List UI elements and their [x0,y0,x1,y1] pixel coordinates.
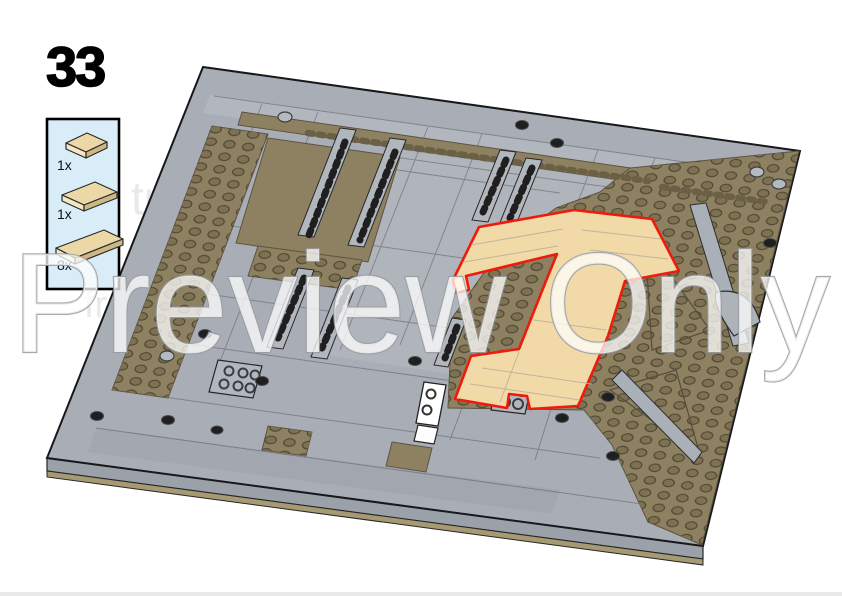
instruction-page: tr fro [0,0,842,596]
preview-watermark: Preview Only [12,224,830,383]
footer-bar [0,592,842,596]
step-number: 33 [46,35,105,98]
scene: tr fro [0,0,842,596]
part-quantity: 1x [57,206,72,222]
part-quantity: 1x [57,157,72,173]
